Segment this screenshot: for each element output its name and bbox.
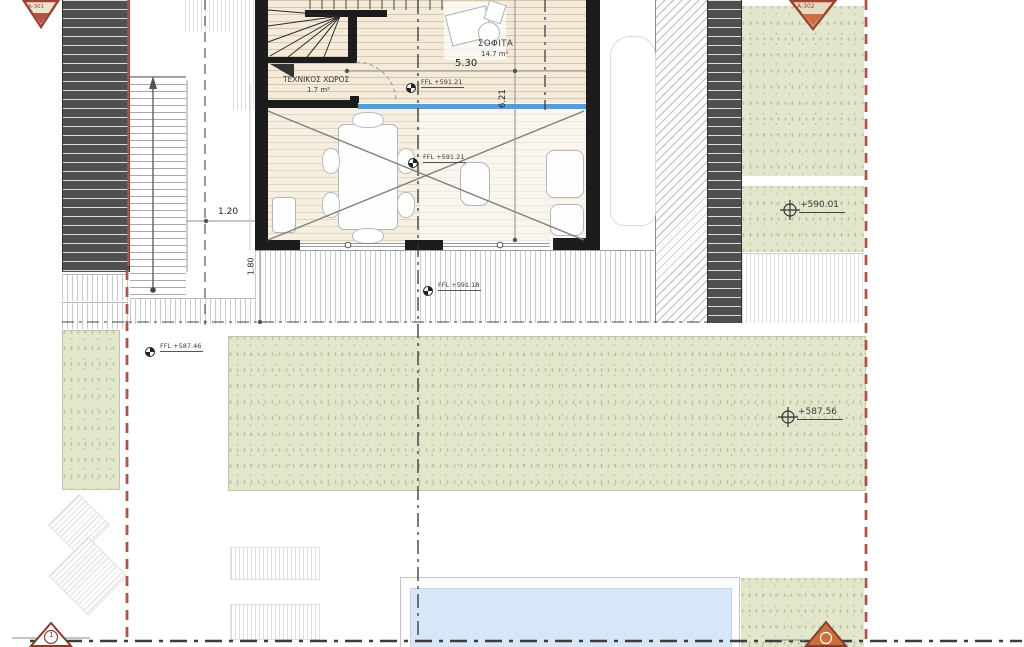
void-cross-marks — [268, 111, 584, 240]
dim-text-120: 1.20 — [218, 208, 238, 218]
glazing-node — [497, 242, 503, 248]
dim-text-180: 1.80 — [248, 257, 257, 275]
level-label-terrace: FFL +591.18 — [438, 282, 481, 291]
level-symbol-terrace — [424, 287, 433, 296]
linework-overlay — [0, 0, 1024, 647]
dim-text-530: 5.30 — [455, 58, 477, 69]
level-symbol-attic — [407, 84, 416, 93]
spot-symbol-garden — [778, 407, 798, 427]
detail-marker-bottom-right — [780, 622, 846, 646]
level-symbol-garden — [146, 348, 155, 357]
dim-node — [513, 238, 517, 242]
level-label-garden: FFL +587.46 — [160, 343, 203, 352]
room-label-technical: ΤΕΧΝΙΚΟΣ ΧΩΡΟΣ — [283, 76, 349, 84]
stair-arrow-head — [149, 76, 157, 89]
stair-arrow-start — [150, 287, 156, 293]
section-label-left: A-301 — [28, 4, 44, 10]
glazing-lines — [300, 244, 550, 247]
dim-text-621: 6.21 — [499, 89, 508, 108]
room-area-attic: 14.7 m² — [481, 51, 508, 59]
dim-node — [204, 219, 208, 223]
detail-label-left: 1 — [49, 632, 53, 640]
spot-label-garden: +587.56 — [797, 408, 843, 420]
room-area-technical: 1.7 m² — [307, 87, 330, 95]
glazing-node — [345, 242, 351, 248]
room-label-attic: ΣΟΦΙΤΑ — [478, 40, 513, 49]
dim-node — [345, 69, 349, 73]
floor-plan-canvas: ΣΟΦΙΤΑ 14.7 m² ΤΕΧΝΙΚΟΣ ΧΩΡΟΣ 1.7 m² 5.3… — [0, 0, 1024, 647]
dim-node — [513, 69, 517, 73]
level-symbol-void — [409, 159, 418, 168]
section-label-right: A-302 — [797, 4, 815, 11]
door-swing-arc — [356, 62, 396, 101]
spot-label-mid: +590.01 — [799, 201, 845, 213]
level-label-void: FFL +591.21 — [423, 154, 466, 163]
stair-winder-treads — [268, 10, 340, 57]
spot-symbol-mid — [780, 200, 800, 220]
stair-upper-treads — [310, 0, 442, 10]
dim-node — [258, 320, 262, 324]
level-label-attic: FFL +591.21 — [421, 79, 464, 88]
